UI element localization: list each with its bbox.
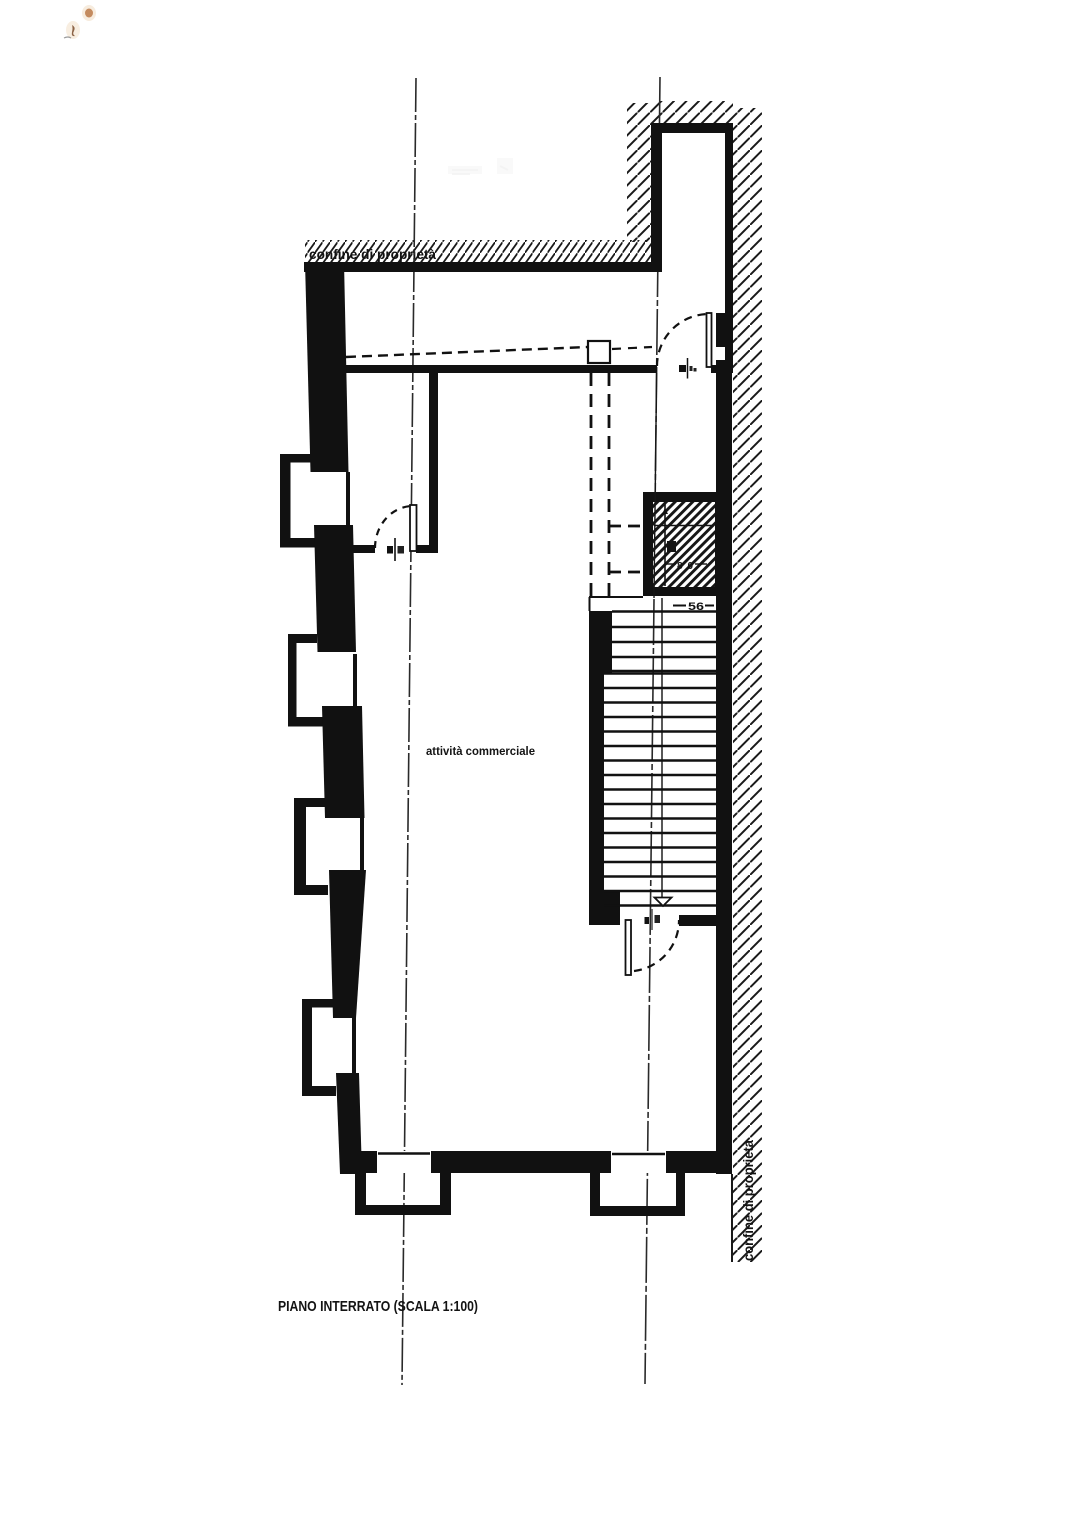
svg-text:confine di proprietà: confine di proprietà [309,247,436,262]
svg-text:PIANO INTERRATO (SCALA 1:100): PIANO INTERRATO (SCALA 1:100) [278,1298,478,1315]
svg-text:attività commerciale: attività commerciale [426,744,535,758]
svg-text:confine di proprietà: confine di proprietà [740,1140,756,1261]
